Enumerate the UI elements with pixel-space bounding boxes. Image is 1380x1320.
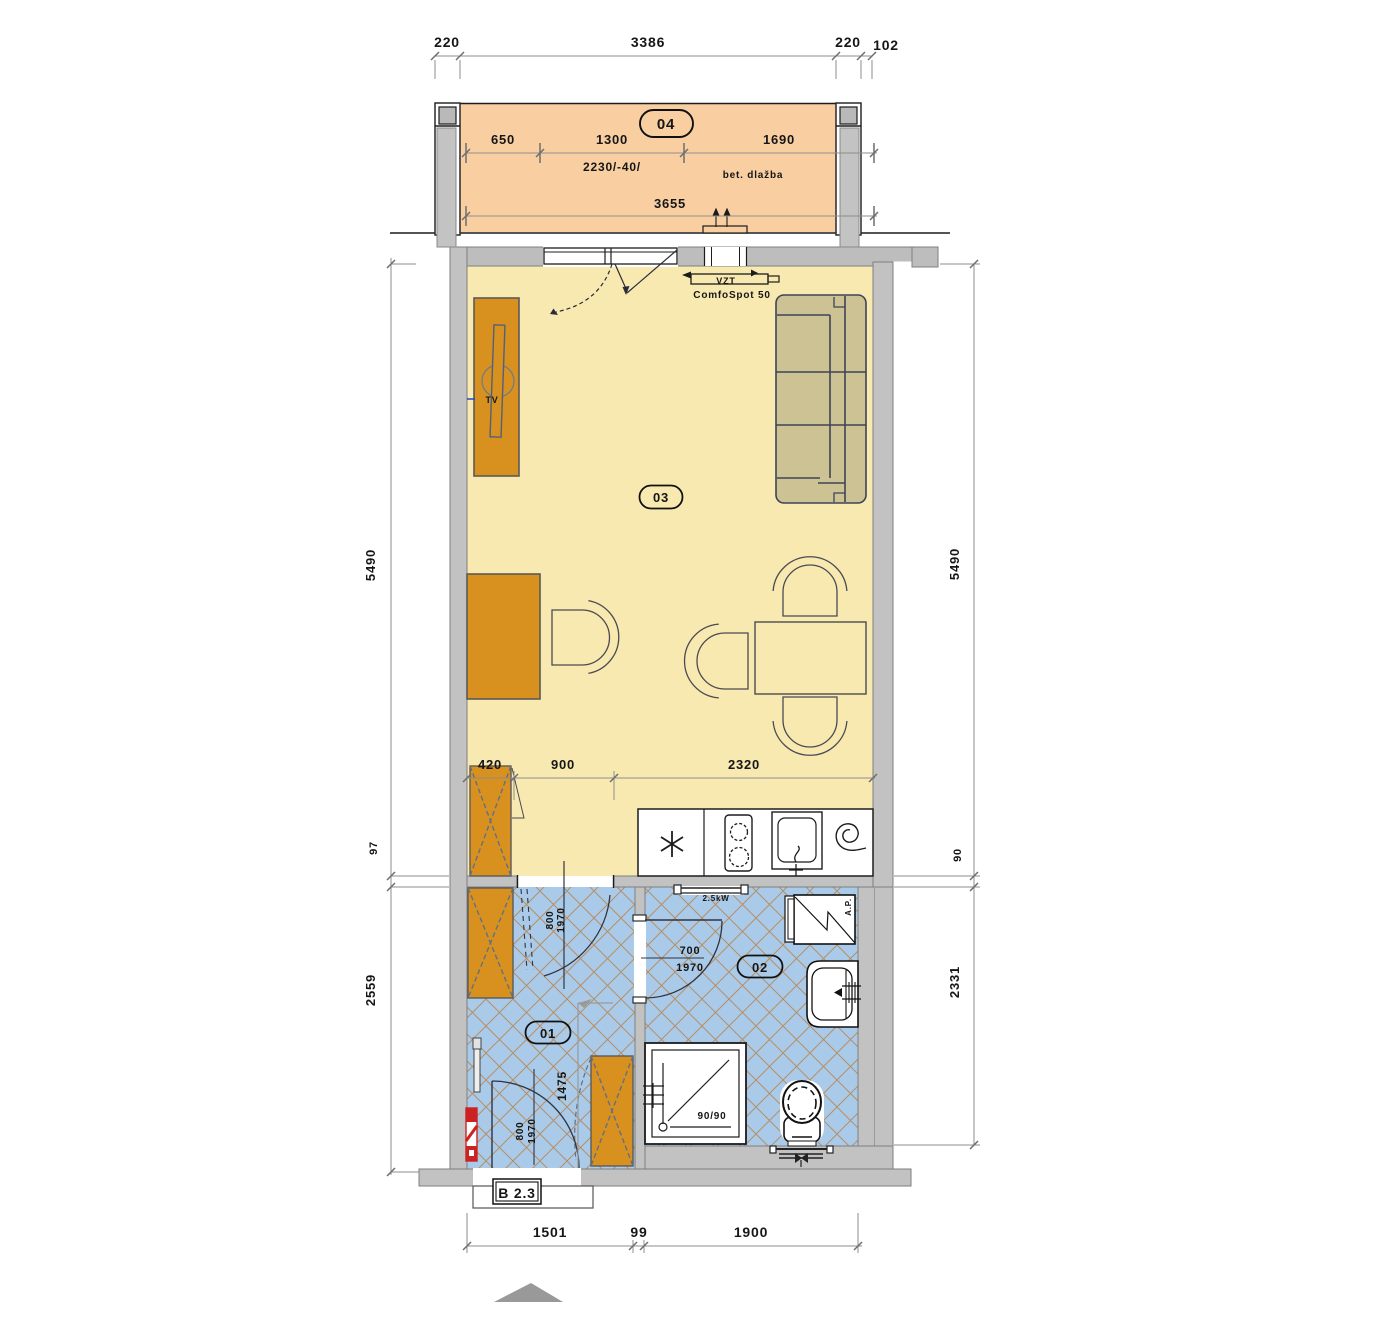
svg-text:01: 01 <box>540 1026 556 1041</box>
svg-text:B 2.3: B 2.3 <box>498 1185 535 1201</box>
svg-text:2.5kW: 2.5kW <box>702 894 729 903</box>
svg-text:90: 90 <box>952 848 964 862</box>
svg-text:3655: 3655 <box>654 196 686 211</box>
svg-text:2320: 2320 <box>728 757 760 772</box>
svg-text:2559: 2559 <box>363 974 378 1006</box>
svg-text:1475: 1475 <box>555 1071 569 1101</box>
svg-text:A.P.: A.P. <box>844 898 853 916</box>
svg-text:1501: 1501 <box>533 1224 567 1240</box>
svg-text:3386: 3386 <box>631 34 665 50</box>
svg-text:5490: 5490 <box>947 548 962 580</box>
svg-text:bet. dlažba: bet. dlažba <box>723 170 783 181</box>
svg-text:5490: 5490 <box>363 549 378 581</box>
svg-text:97: 97 <box>368 841 380 855</box>
svg-text:220: 220 <box>434 34 460 50</box>
svg-text:ComfoSpot 50: ComfoSpot 50 <box>693 290 770 301</box>
svg-text:1970: 1970 <box>556 907 567 932</box>
svg-text:220: 220 <box>835 34 861 50</box>
svg-text:420: 420 <box>478 757 502 772</box>
svg-text:2331: 2331 <box>947 966 962 998</box>
svg-text:800: 800 <box>515 1121 526 1140</box>
svg-text:04: 04 <box>657 116 675 133</box>
svg-text:900: 900 <box>551 757 575 772</box>
svg-text:1690: 1690 <box>763 132 795 147</box>
svg-text:03: 03 <box>653 490 669 505</box>
svg-text:1970: 1970 <box>676 962 704 974</box>
svg-text:VZT: VZT <box>716 276 735 286</box>
svg-text:TV: TV <box>485 395 498 405</box>
svg-text:700: 700 <box>680 945 701 957</box>
svg-text:800: 800 <box>545 910 556 929</box>
svg-text:99: 99 <box>630 1224 647 1240</box>
svg-text:02: 02 <box>752 960 768 975</box>
svg-text:2230/-40/: 2230/-40/ <box>583 160 641 174</box>
svg-text:1970: 1970 <box>527 1118 538 1143</box>
svg-text:1300: 1300 <box>596 132 628 147</box>
svg-text:650: 650 <box>491 132 515 147</box>
svg-text:102: 102 <box>873 37 899 53</box>
svg-text:90/90: 90/90 <box>697 1111 726 1122</box>
svg-text:1900: 1900 <box>734 1224 768 1240</box>
